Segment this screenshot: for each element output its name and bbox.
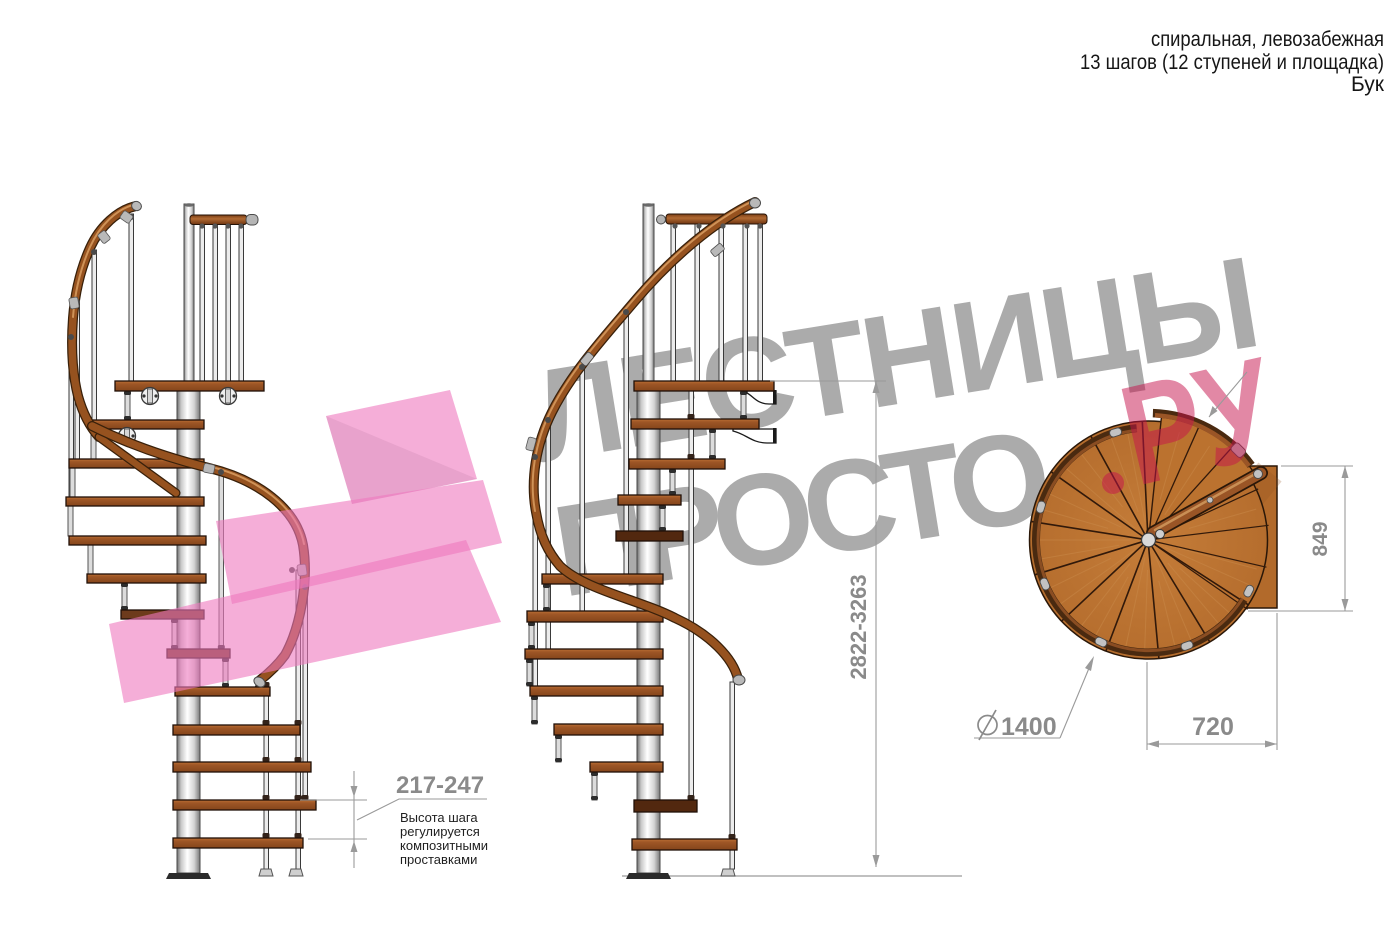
svg-text:композитными: композитными — [400, 838, 488, 853]
svg-text:проставками: проставками — [400, 852, 477, 867]
svg-text:720: 720 — [1192, 713, 1234, 741]
svg-text:регулируется: регулируется — [400, 824, 480, 839]
svg-text:217-247: 217-247 — [396, 772, 484, 799]
svg-text:2822-3263: 2822-3263 — [846, 574, 871, 679]
svg-text:Бук: Бук — [1351, 73, 1385, 96]
svg-text:1400: 1400 — [1001, 713, 1057, 741]
svg-text:849: 849 — [1309, 521, 1332, 556]
svg-text:спиральная, левозабежная: спиральная, левозабежная — [1151, 28, 1384, 51]
svg-text:13 шагов (12 ступеней и площад: 13 шагов (12 ступеней и площадка) — [1080, 51, 1384, 74]
svg-text:Высота шага: Высота шага — [400, 810, 478, 825]
